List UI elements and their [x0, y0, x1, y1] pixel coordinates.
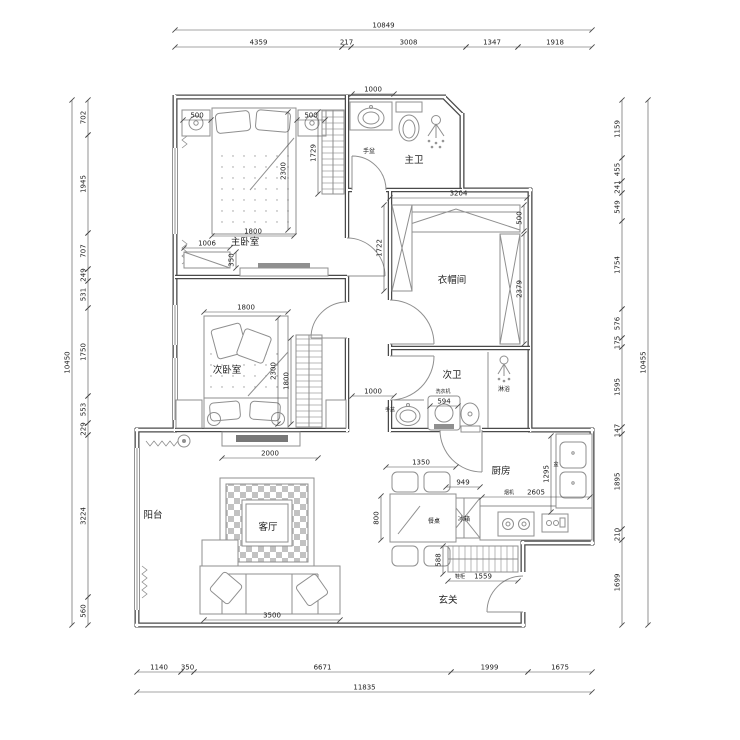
dim-label: 1559 — [474, 573, 492, 581]
dim-label: 588 — [435, 553, 443, 566]
dimension-4359-1: 4359 — [172, 39, 344, 50]
dim-label: 594 — [437, 398, 451, 406]
dimension-1347-4: 1347 — [463, 39, 520, 50]
dim-label: 3008 — [400, 39, 418, 47]
dimension-147-25: 147 — [614, 424, 625, 437]
dim-label: 1159 — [614, 120, 622, 138]
dim-label: 1722 — [376, 239, 384, 257]
dim-label: 10455 — [640, 351, 648, 373]
dim-label: 1006 — [198, 240, 216, 248]
room-label-master-bedroom: 主卧室 — [231, 236, 260, 248]
dim-label: 175 — [614, 336, 622, 349]
dim-label: 549 — [614, 200, 622, 213]
room-label-balcony: 阳台 — [143, 509, 162, 521]
fixture-label-kitchen-sink: 盆 — [553, 461, 558, 468]
dim-label: 500 — [516, 211, 524, 224]
dimension-1595-24: 1595 — [614, 344, 625, 429]
door-second-bedroom — [311, 302, 347, 338]
dim-label: 1945 — [80, 175, 88, 193]
dimension-10455-29: 10455 — [640, 97, 651, 627]
dim-label: 2300 — [270, 362, 278, 380]
second-nightstand-left — [176, 400, 202, 428]
dim-label: 1800 — [283, 372, 291, 390]
stove — [498, 512, 534, 536]
dim-label: 553 — [80, 403, 88, 416]
dimension-1699-28: 1699 — [614, 537, 625, 627]
dimension-2000-60: 2000 — [219, 450, 320, 461]
dim-label: 210 — [614, 528, 622, 541]
windows — [133, 148, 178, 610]
squiggle-icon — [146, 441, 178, 446]
room-label-kitchen: 厨房 — [491, 465, 510, 477]
room-label-second-bedroom: 次卧室 — [213, 364, 242, 376]
dim-label: 1750 — [80, 343, 88, 361]
dim-label: 229 — [80, 422, 88, 435]
dimension-249-10: 249 — [80, 266, 91, 283]
fixture-label-dining-table: 餐桌 — [428, 517, 440, 525]
dimension-455-18: 455 — [614, 155, 625, 183]
shoe-cabinet-box — [448, 546, 518, 572]
fixture-label-second-basin: 手盆 — [385, 406, 395, 413]
dim-label: 455 — [614, 163, 622, 176]
dim-label: 1918 — [546, 39, 564, 47]
dim-label: 2000 — [261, 450, 279, 458]
fixture-label-shower: 淋浴 — [498, 385, 510, 393]
dim-label: 1000 — [364, 388, 382, 396]
dining-set — [390, 472, 456, 566]
dimension-576-22: 576 — [614, 306, 625, 340]
dim-label: 2379 — [516, 280, 524, 298]
dim-label: 1595 — [614, 378, 622, 396]
fixture-label-shoe-cabinet: 鞋柜 — [455, 573, 465, 580]
door-kitchen-passage — [440, 430, 482, 472]
fixture-label-fridge: 冰箱 — [458, 515, 470, 523]
room-label-second-bath: 次卫 — [442, 369, 462, 381]
dimension-217-2: 217 — [339, 39, 353, 50]
dim-label: 949 — [456, 479, 469, 487]
small-appliance — [542, 514, 568, 532]
dim-label: 4359 — [250, 39, 268, 47]
second-wardrobe — [296, 335, 322, 427]
dim-label: 10849 — [372, 22, 394, 30]
dim-label: 350 — [228, 253, 236, 266]
dimension-702-7: 702 — [80, 97, 91, 137]
fixture-label-range-hood: 烟机 — [504, 489, 514, 496]
room-label-master-bath: 主卫 — [404, 154, 424, 166]
dimension-layer: 1084943592173008134719181045070219457072… — [64, 22, 651, 695]
dimension-1918-5: 1918 — [515, 39, 594, 50]
dim-label: 217 — [340, 39, 353, 47]
dimension-560-16: 560 — [80, 594, 91, 627]
dimension-10849-0: 10849 — [172, 22, 594, 33]
dimension-1999-33: 1999 — [448, 664, 530, 675]
dimension-3224-15: 3224 — [80, 432, 91, 599]
dim-label: 1675 — [551, 664, 569, 672]
dim-label: 1754 — [614, 256, 622, 274]
dimension-1295-55: 1295 — [543, 433, 554, 514]
dim-label: 11835 — [353, 684, 375, 692]
dimension-1000-51: 1000 — [349, 388, 396, 399]
dim-label: 1295 — [543, 465, 551, 483]
master-toilet — [396, 102, 422, 141]
dim-label: 2300 — [280, 162, 288, 180]
dim-label: 1000 — [364, 86, 382, 94]
dim-label: 1895 — [614, 473, 622, 491]
dim-label: 1729 — [310, 144, 318, 162]
dimension-1159-17: 1159 — [614, 97, 625, 160]
squiggle-icon — [142, 566, 147, 598]
dim-label: 241 — [614, 180, 622, 193]
dimension-1895-26: 1895 — [614, 431, 625, 531]
master-basin — [350, 102, 392, 130]
second-basin — [394, 400, 424, 426]
dim-label: 249 — [80, 268, 88, 281]
dimension-175-23: 175 — [614, 335, 625, 349]
dimension-531-11: 531 — [80, 278, 91, 310]
dim-label: 500 — [190, 112, 203, 120]
dim-label: 3204 — [450, 190, 468, 198]
window-second-left-1 — [171, 305, 178, 345]
dim-label: 1699 — [614, 574, 622, 592]
dimension-707-9: 707 — [80, 230, 91, 271]
dimension-3008-3: 3008 — [348, 39, 468, 50]
dimension-1140-30: 1140 — [134, 664, 183, 675]
dim-label: 702 — [80, 111, 88, 124]
dimension-241-19: 241 — [614, 178, 625, 195]
dim-label: 3224 — [80, 507, 88, 525]
room-label-living-room: 客厅 — [258, 521, 278, 533]
dimension-549-20: 549 — [614, 190, 625, 223]
dimension-1006-41: 1006 — [181, 240, 232, 251]
dim-label: 576 — [614, 316, 622, 330]
dimension-210-27: 210 — [614, 526, 625, 542]
dim-label: 1350 — [412, 459, 430, 467]
sofa — [200, 566, 340, 614]
dimension-1754-21: 1754 — [614, 218, 625, 311]
dimension-6671-32: 6671 — [191, 664, 453, 675]
dimension-553-13: 553 — [80, 393, 91, 425]
dim-label: 350 — [181, 664, 194, 672]
dimension-229-14: 229 — [80, 420, 91, 437]
dimension-1722-47: 1722 — [376, 202, 387, 293]
dimension-1945-8: 1945 — [80, 132, 91, 235]
door-cloakroom — [390, 300, 434, 344]
master-tv-cabinet — [240, 263, 328, 276]
master-wardrobe — [322, 110, 344, 194]
window-balcony-left — [133, 448, 140, 610]
dimension-350-31: 350 — [178, 664, 196, 675]
dim-label: 531 — [80, 288, 88, 301]
balcony-drain — [178, 435, 190, 447]
door-master-bath — [352, 156, 386, 190]
dim-label: 1999 — [481, 664, 499, 672]
dim-label: 1347 — [483, 39, 501, 47]
room-label-entry: 玄关 — [438, 594, 458, 606]
second-toilet — [461, 403, 480, 432]
dimension-11835-35: 11835 — [134, 684, 594, 695]
dimension-10450-6: 10450 — [64, 97, 75, 627]
dimension-1750-12: 1750 — [80, 305, 91, 398]
dim-label: 10450 — [64, 351, 72, 373]
dim-label: 1140 — [150, 664, 168, 672]
dim-label: 1800 — [237, 304, 255, 312]
second-nightstand-right — [326, 400, 346, 428]
window-master-left — [171, 148, 178, 234]
floor-plan-drawing: 1084943592173008134719181045070219457072… — [0, 0, 740, 740]
fixture-label-washing-machine: 洗衣机 — [435, 388, 450, 395]
dim-label: 500 — [304, 112, 317, 120]
dim-label: 6671 — [314, 664, 332, 672]
dim-label: 3500 — [263, 612, 281, 620]
dim-label: 707 — [80, 244, 88, 257]
tv-console — [222, 432, 300, 446]
dimension-800-57: 800 — [373, 493, 384, 542]
wall-squiggles — [142, 116, 187, 598]
dimension-1800-48: 1800 — [201, 304, 290, 315]
dim-label: 800 — [373, 511, 381, 524]
dimension-1350-56: 1350 — [383, 459, 458, 470]
master-shower-head-icon — [428, 116, 444, 148]
dimension-1675-34: 1675 — [525, 664, 594, 675]
fixture-label-master-basin: 手盆 — [363, 147, 375, 155]
drawer-chest — [184, 252, 230, 268]
dim-label: 2605 — [527, 489, 545, 497]
dim-label: 560 — [80, 604, 88, 617]
floor-plan-canvas: 1084943592173008134719181045070219457072… — [0, 0, 740, 740]
side-table — [202, 540, 238, 566]
room-label-cloakroom: 衣帽间 — [438, 274, 467, 286]
dim-label: 1800 — [244, 228, 262, 236]
